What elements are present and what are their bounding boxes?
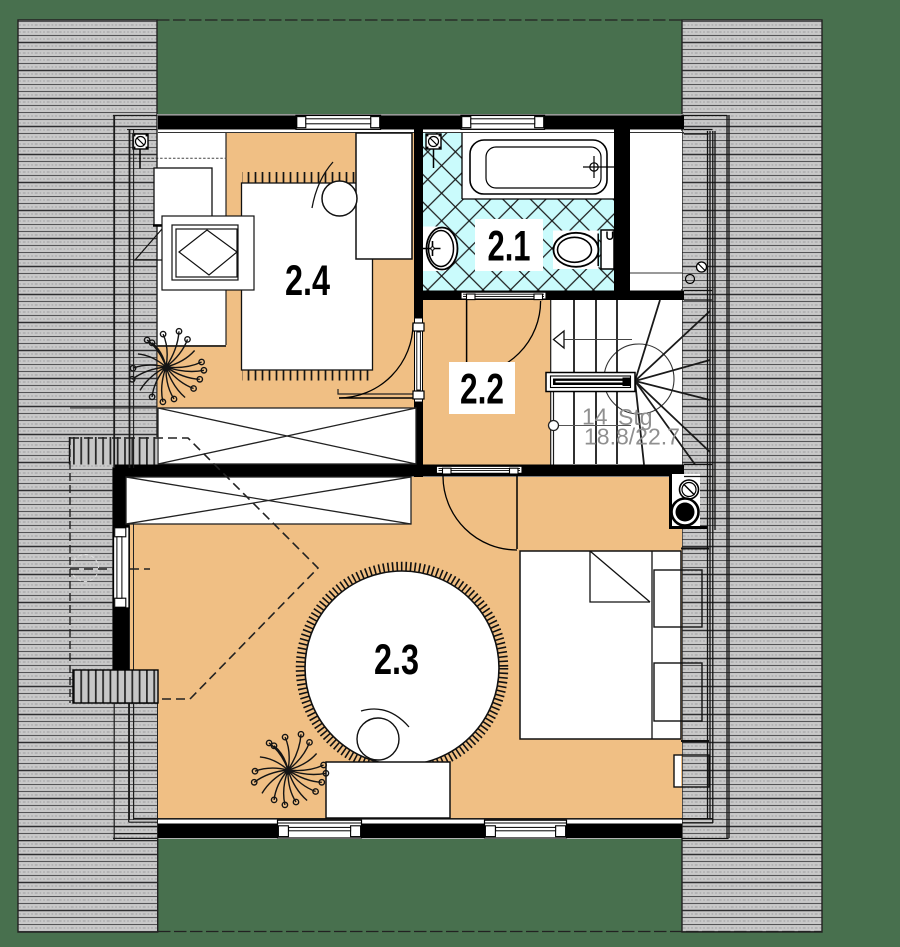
svg-text:2.2: 2.2 xyxy=(460,366,504,414)
svg-text:18.8/22.7: 18.8/22.7 xyxy=(584,424,680,450)
svg-text:2.1: 2.1 xyxy=(488,223,531,271)
svg-text:2.3: 2.3 xyxy=(374,636,419,684)
svg-text:2.4: 2.4 xyxy=(285,257,330,305)
